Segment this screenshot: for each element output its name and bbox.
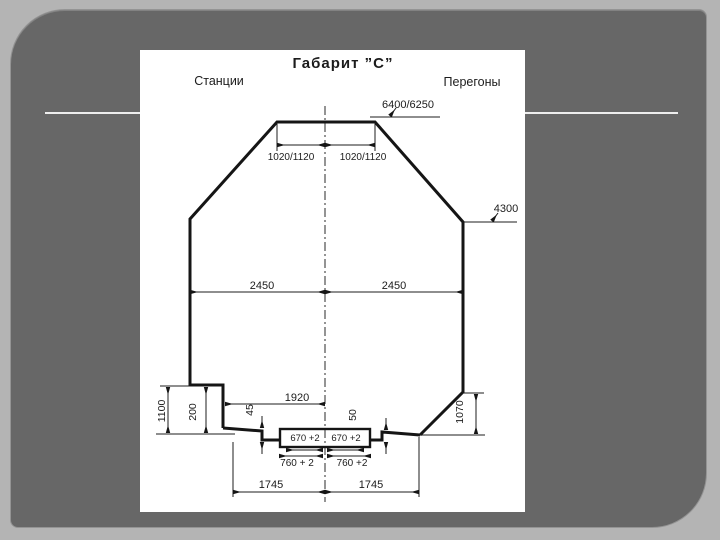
dim-mid-right-half: 2450 [382,280,406,292]
gauge-diagram: Габарит ”С” Станции Перегоны 6400/6250 1… [140,50,525,512]
dim-mid-left-half: 2450 [250,280,274,292]
dim-rail-inner-left: 670 +2 [290,433,319,444]
dim-right-height: 1070 [454,400,466,424]
diagram-panel: Габарит ”С” Станции Перегоны 6400/6250 1… [140,50,525,512]
dim-rail-outer-left: 760 + 2 [280,458,314,469]
diagram-title: Габарит ”С” [293,55,394,72]
dim-bottom-right-half: 1745 [359,479,383,491]
dim-top-width: 6400/6250 [382,99,434,111]
dimension-lines [168,145,476,492]
dim-left-gap: 45 [244,404,256,416]
dim-step-height: 200 [187,403,199,421]
stations-heading: Станции [194,74,244,88]
dim-right-gap: 50 [347,409,359,421]
dim-height-right: 4300 [494,203,518,215]
hauls-heading: Перегоны [444,75,501,89]
dim-platform-offset: 1920 [285,392,309,404]
dim-top-left-half: 1020/1120 [268,152,315,163]
dim-rail-outer-right: 760 +2 [337,458,368,469]
dim-top-right-half: 1020/1120 [340,152,387,163]
dim-bottom-left-half: 1745 [259,479,283,491]
gauge-outline [190,122,463,447]
dim-rail-inner-right: 670 +2 [331,433,360,444]
dim-platform-height: 1100 [156,400,168,423]
